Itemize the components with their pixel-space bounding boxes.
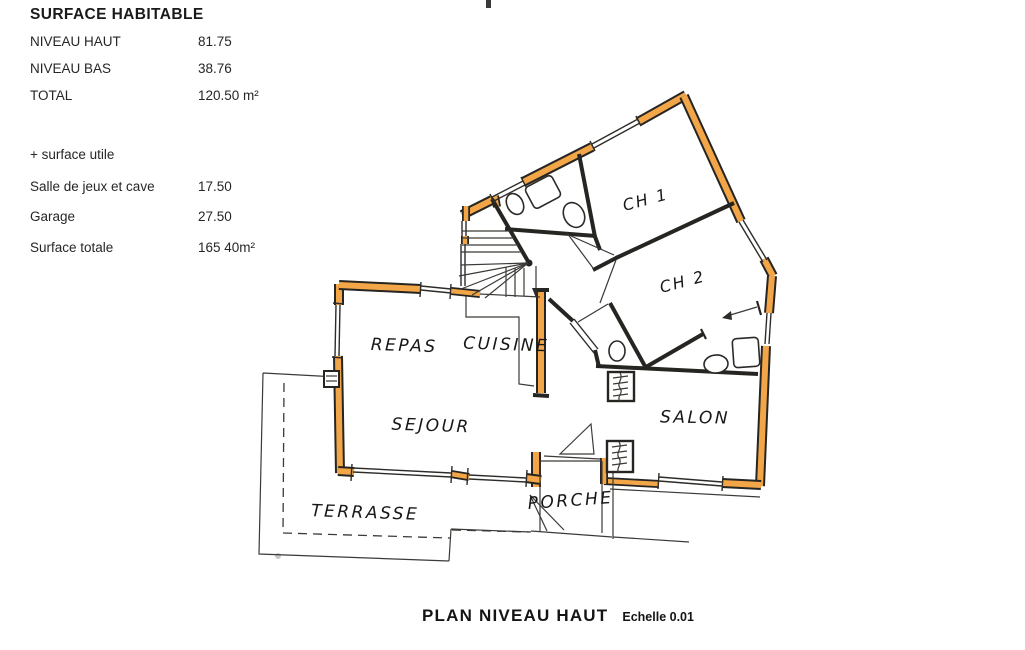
bidet-top bbox=[559, 199, 589, 231]
plan-title: PLAN NIVEAU HAUT bbox=[422, 606, 608, 625]
room-label-repas: REPAS bbox=[370, 335, 438, 357]
row-value: 38.76 bbox=[198, 61, 232, 76]
table-row: Garage 27.50 bbox=[30, 209, 75, 224]
row-value: 81.75 bbox=[198, 34, 232, 49]
scan-dot bbox=[275, 553, 281, 559]
surface-table-title: SURFACE HABITABLE bbox=[30, 6, 204, 24]
scan-mark bbox=[486, 0, 491, 8]
room-label-sejour: SEJOUR bbox=[391, 415, 471, 438]
row-value: 17.50 bbox=[198, 179, 232, 194]
table-row: TOTAL 120.50 m² bbox=[30, 88, 72, 103]
sink-lower bbox=[732, 337, 760, 368]
row-label: NIVEAU HAUT bbox=[30, 34, 121, 49]
table-row: NIVEAU HAUT 81.75 bbox=[30, 34, 121, 49]
row-value: 165 40m² bbox=[198, 240, 255, 255]
terrace-outline bbox=[259, 373, 531, 561]
shaft-hatched bbox=[607, 372, 634, 472]
row-label: Surface totale bbox=[30, 240, 113, 255]
page: SURFACE HABITABLE NIVEAU HAUT 81.75 NIVE… bbox=[0, 0, 1025, 650]
table-note: + surface utile bbox=[30, 147, 114, 162]
row-label: Garage bbox=[30, 209, 75, 224]
room-label-salon: SALON bbox=[660, 407, 730, 428]
row-value: 27.50 bbox=[198, 209, 232, 224]
table-row: Salle de jeux et cave 17.50 bbox=[30, 179, 155, 194]
table-row: NIVEAU BAS 38.76 bbox=[30, 61, 111, 76]
entry-door-swing bbox=[560, 424, 594, 454]
toilet-lower bbox=[609, 341, 625, 361]
surface-table: SURFACE HABITABLE NIVEAU HAUT 81.75 NIVE… bbox=[0, 0, 300, 270]
room-label-cuisine: CUISINE bbox=[463, 334, 550, 357]
row-value: 120.50 m² bbox=[198, 88, 259, 103]
row-label: TOTAL bbox=[30, 88, 72, 103]
room-label-ch1: CH 1 bbox=[621, 184, 671, 214]
room-label-ch2: CH 2 bbox=[658, 266, 708, 296]
plan-caption: PLAN NIVEAU HAUTEchelle 0.01 bbox=[422, 606, 694, 626]
row-label: Salle de jeux et cave bbox=[30, 179, 155, 194]
row-label: NIVEAU BAS bbox=[30, 61, 111, 76]
room-label-terrasse: TERRASSE bbox=[311, 501, 420, 525]
plan-scale: Echelle 0.01 bbox=[622, 610, 694, 624]
table-row: Surface totale 165 40m² bbox=[30, 240, 113, 255]
